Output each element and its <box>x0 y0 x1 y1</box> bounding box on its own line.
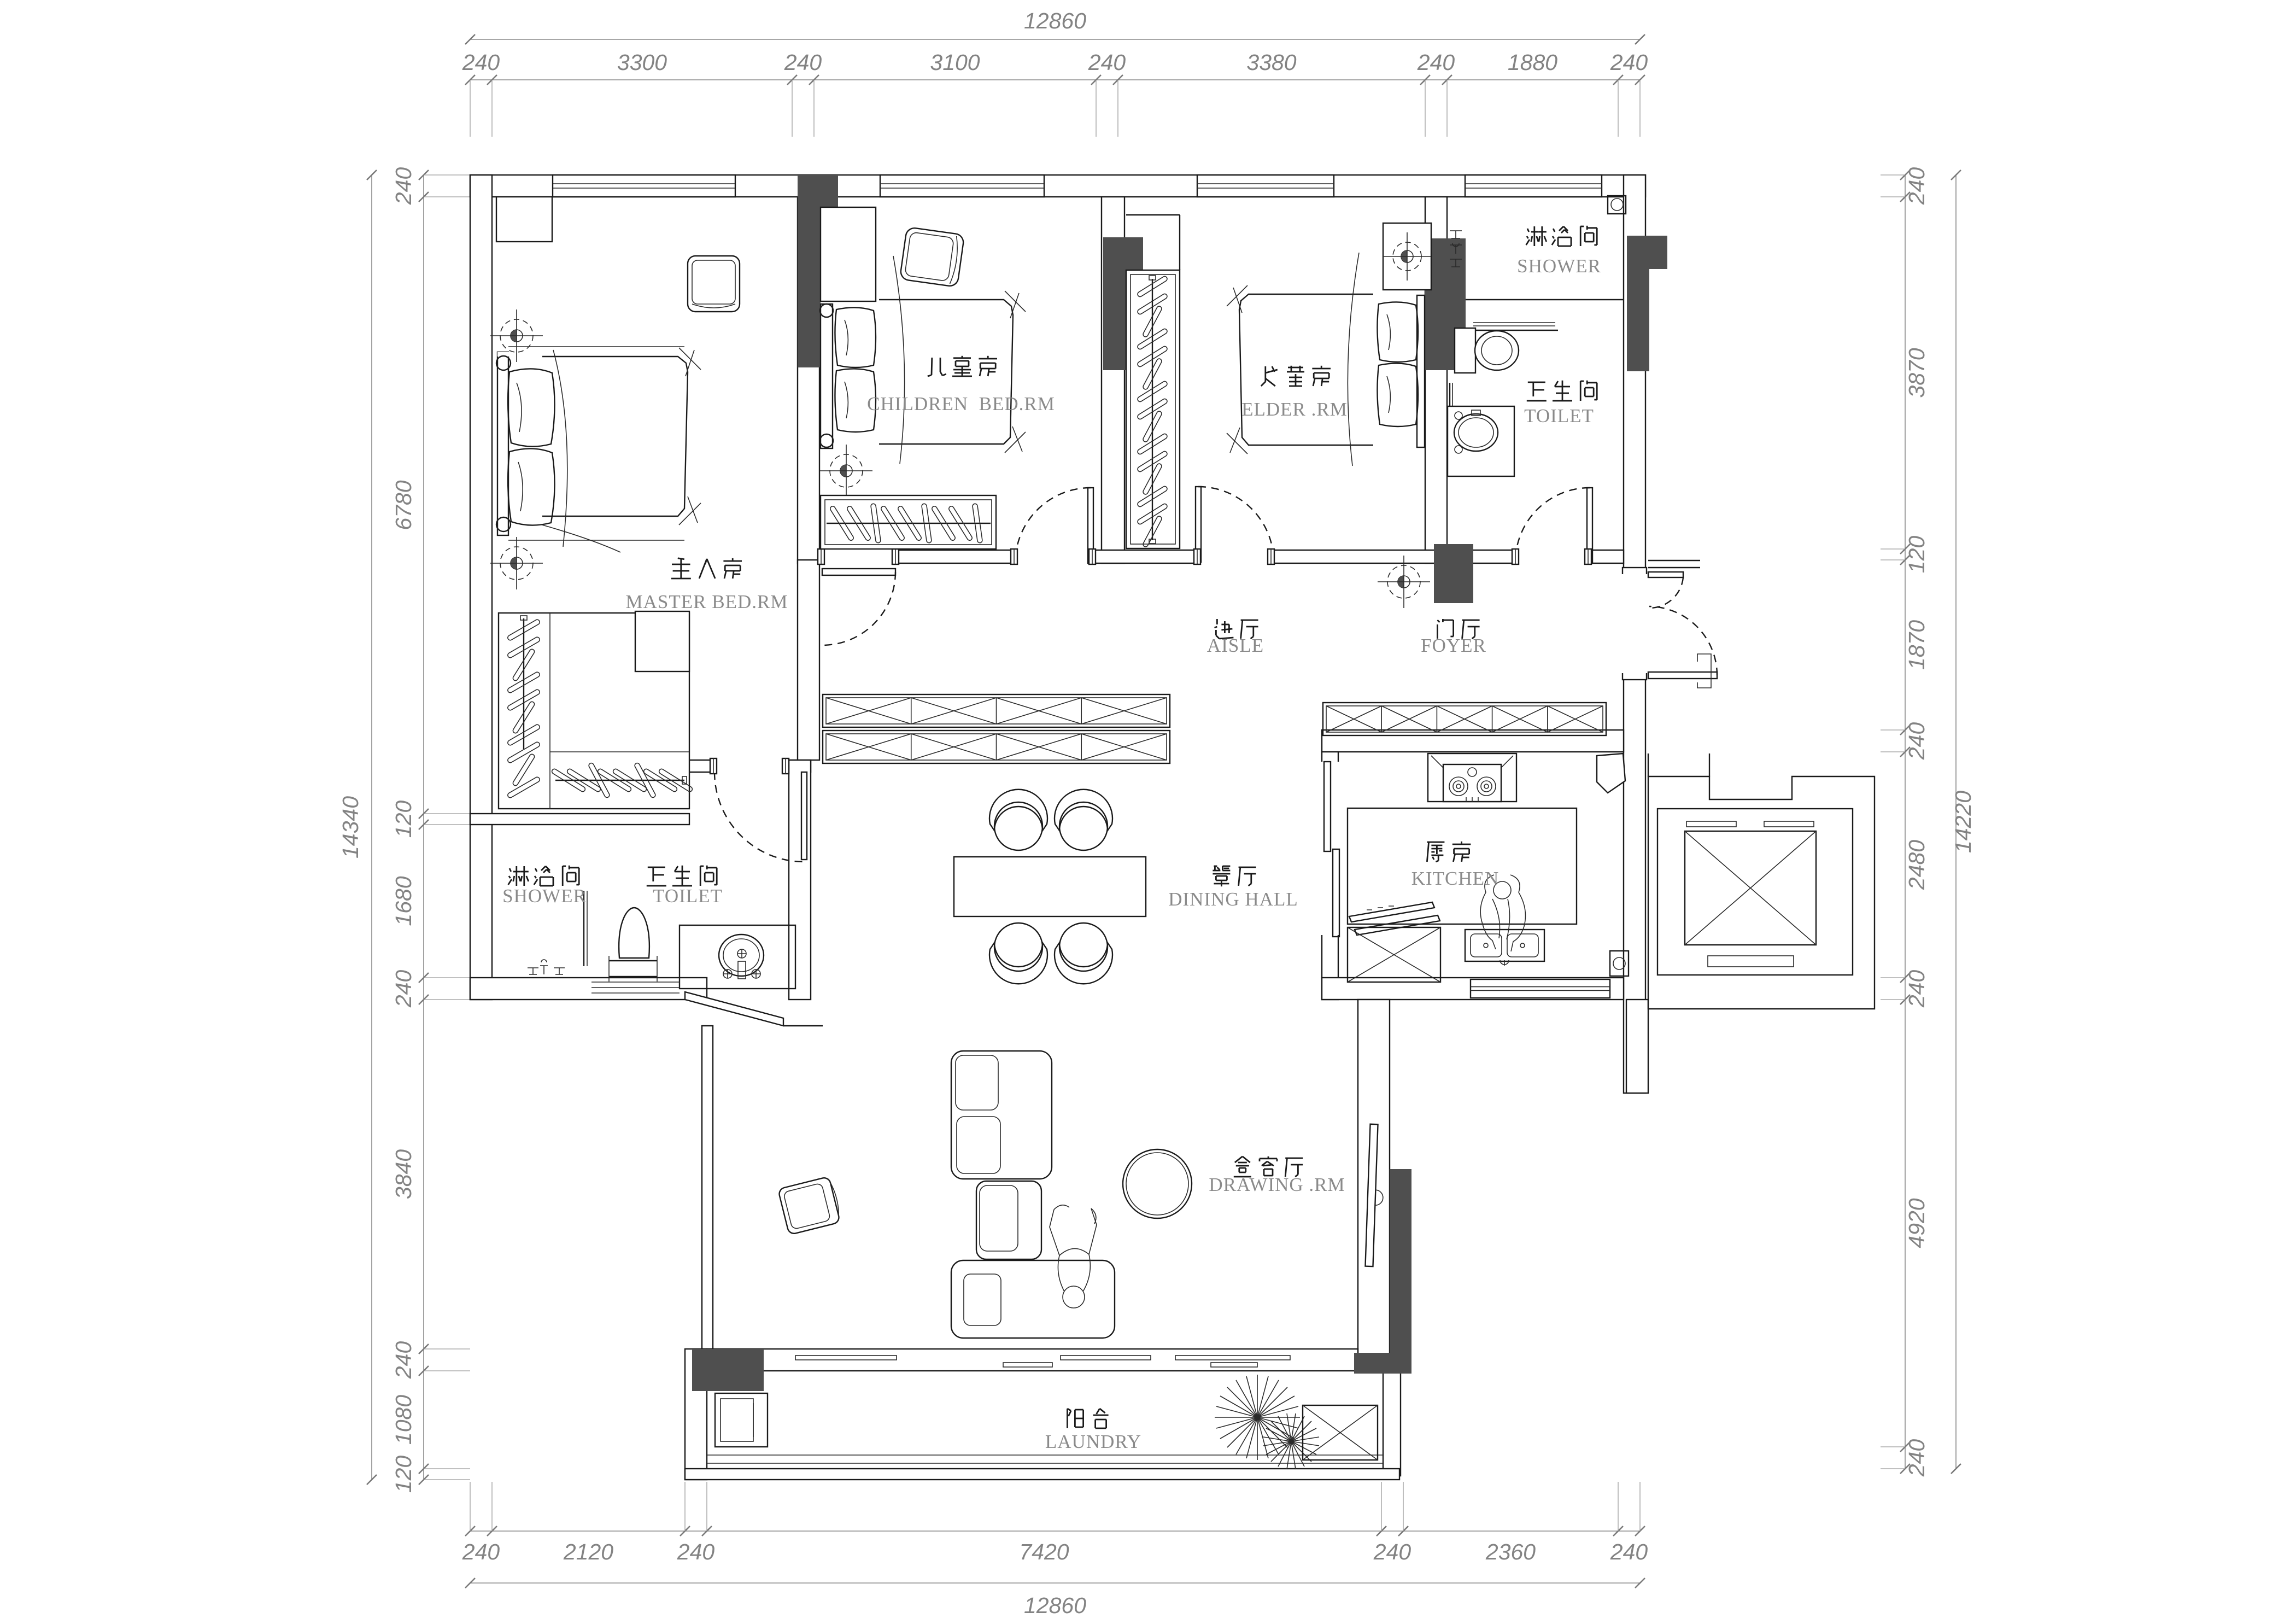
svg-text:240: 240 <box>391 167 416 206</box>
svg-text:3300: 3300 <box>617 50 667 75</box>
svg-text:120: 120 <box>391 1456 416 1493</box>
svg-text:240: 240 <box>391 970 416 1008</box>
svg-text:240: 240 <box>462 1539 500 1564</box>
svg-text:4920: 4920 <box>1904 1198 1929 1248</box>
svg-text:ELDER .RM: ELDER .RM <box>1241 399 1348 420</box>
svg-text:FOYER: FOYER <box>1421 635 1486 656</box>
svg-text:12860: 12860 <box>1024 8 1086 33</box>
svg-text:3380: 3380 <box>1246 50 1296 75</box>
svg-text:3840: 3840 <box>391 1149 416 1199</box>
svg-text:SHOWER: SHOWER <box>502 885 587 907</box>
svg-text:DINING HALL: DINING HALL <box>1168 889 1298 910</box>
svg-text:240: 240 <box>1610 1539 1648 1564</box>
svg-text:AISLE: AISLE <box>1207 635 1264 656</box>
svg-text:240: 240 <box>1904 722 1929 761</box>
svg-text:14340: 14340 <box>338 796 363 858</box>
svg-text:CHILDREN BED.RM: CHILDREN BED.RM <box>867 393 1055 414</box>
svg-text:SHOWER: SHOWER <box>1517 255 1601 277</box>
svg-text:TOILET: TOILET <box>1524 405 1594 427</box>
svg-text:2480: 2480 <box>1904 840 1929 890</box>
svg-text:240: 240 <box>1373 1539 1411 1564</box>
svg-text:12860: 12860 <box>1024 1593 1086 1618</box>
svg-text:6780: 6780 <box>391 480 416 530</box>
svg-text:240: 240 <box>391 1341 416 1380</box>
svg-text:1870: 1870 <box>1904 620 1929 670</box>
svg-text:240: 240 <box>1904 167 1929 206</box>
svg-text:14220: 14220 <box>1951 791 1976 853</box>
svg-text:DRAWING .RM: DRAWING .RM <box>1209 1174 1345 1195</box>
svg-text:7420: 7420 <box>1019 1539 1069 1564</box>
svg-text:120: 120 <box>1904 536 1929 574</box>
svg-text:240: 240 <box>1904 970 1929 1008</box>
svg-text:3100: 3100 <box>930 50 980 75</box>
svg-text:240: 240 <box>784 50 822 75</box>
svg-text:240: 240 <box>1088 50 1126 75</box>
svg-text:3870: 3870 <box>1904 348 1929 398</box>
svg-text:1680: 1680 <box>391 876 416 926</box>
svg-text:2360: 2360 <box>1485 1539 1536 1564</box>
svg-text:TOILET: TOILET <box>653 885 723 907</box>
svg-text:MASTER BED.RM: MASTER BED.RM <box>626 591 788 612</box>
svg-text:240: 240 <box>462 50 500 75</box>
svg-text:120: 120 <box>391 801 416 838</box>
svg-text:LAUNDRY: LAUNDRY <box>1045 1431 1141 1452</box>
svg-text:2120: 2120 <box>563 1539 613 1564</box>
svg-text:1880: 1880 <box>1508 50 1557 75</box>
svg-text:KITCHEN: KITCHEN <box>1411 868 1500 889</box>
svg-text:240: 240 <box>1417 50 1455 75</box>
svg-text:240: 240 <box>1610 50 1648 75</box>
svg-text:240: 240 <box>1904 1439 1929 1477</box>
svg-text:240: 240 <box>677 1539 715 1564</box>
svg-text:1080: 1080 <box>391 1395 416 1445</box>
